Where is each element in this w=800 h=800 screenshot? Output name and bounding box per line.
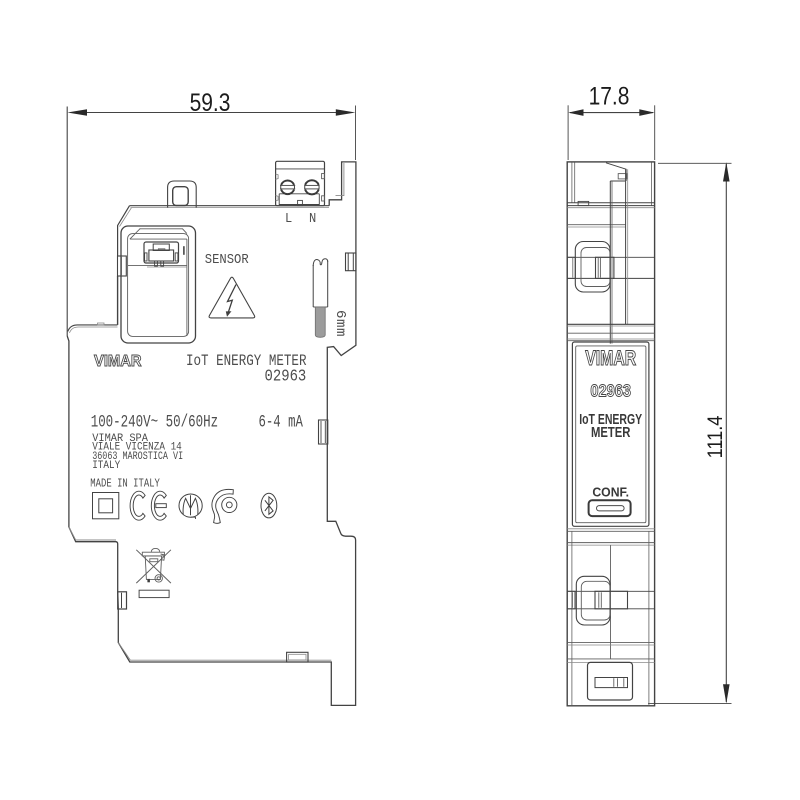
svg-text:111.4: 111.4 (704, 416, 728, 459)
svg-text:17.8: 17.8 (589, 82, 630, 110)
svg-text:VIMAR: VIMAR (94, 353, 142, 370)
svg-text:SENSOR: SENSOR (205, 251, 249, 267)
svg-text:N: N (309, 210, 316, 226)
svg-text:6-4 mA: 6-4 mA (259, 411, 304, 432)
svg-text:100-240V~ 50/60Hz: 100-240V~ 50/60Hz (91, 412, 218, 433)
svg-text:CONF.: CONF. (592, 484, 629, 499)
svg-text:L: L (285, 210, 292, 226)
svg-text:ITALY: ITALY (92, 459, 120, 472)
svg-text:MADE IN ITALY: MADE IN ITALY (90, 477, 160, 491)
svg-text:02963: 02963 (590, 382, 631, 401)
svg-text:02963: 02963 (265, 366, 307, 385)
svg-text:6mm: 6mm (332, 310, 348, 337)
svg-text:VIMAR: VIMAR (585, 347, 636, 370)
svg-text:METER: METER (591, 424, 631, 441)
